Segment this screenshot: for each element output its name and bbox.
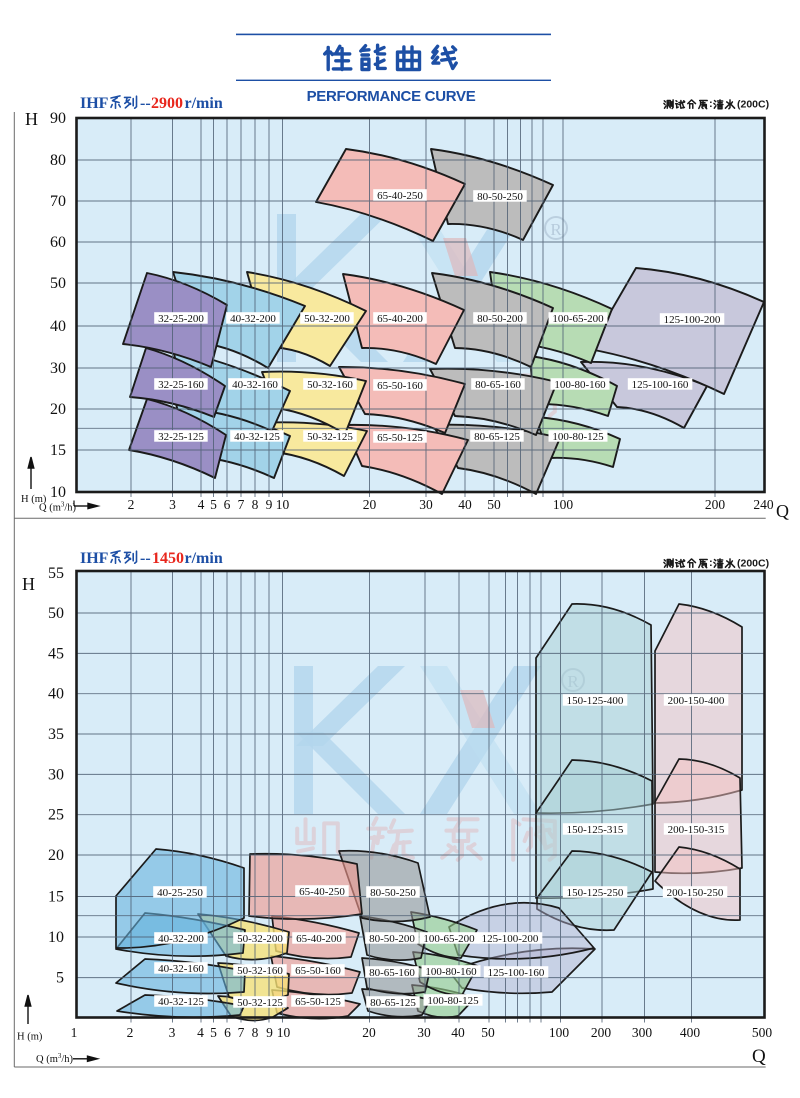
svg-text:3: 3 bbox=[169, 1025, 176, 1040]
svg-text:30: 30 bbox=[50, 360, 66, 377]
svg-text:H: H bbox=[25, 109, 38, 129]
svg-text:4: 4 bbox=[197, 1025, 204, 1040]
svg-text:90: 90 bbox=[50, 110, 66, 127]
svg-text:65-50-125: 65-50-125 bbox=[295, 996, 341, 1008]
svg-text:10: 10 bbox=[48, 929, 64, 946]
svg-text:40-32-125: 40-32-125 bbox=[158, 996, 204, 1008]
svg-text:6: 6 bbox=[224, 1025, 231, 1040]
svg-text:80-65-160: 80-65-160 bbox=[475, 379, 521, 391]
svg-text:50-32-160: 50-32-160 bbox=[307, 379, 353, 391]
svg-text:(200C): (200C) bbox=[737, 99, 769, 111]
svg-text:65-40-200: 65-40-200 bbox=[377, 313, 423, 325]
svg-text:--: -- bbox=[140, 95, 151, 112]
svg-text:9: 9 bbox=[266, 1025, 273, 1040]
svg-text:IHF: IHF bbox=[80, 550, 109, 567]
svg-text:40: 40 bbox=[48, 686, 64, 703]
svg-text:30: 30 bbox=[48, 766, 64, 783]
svg-text:8: 8 bbox=[252, 497, 259, 512]
svg-text:70: 70 bbox=[50, 193, 66, 210]
svg-text:40: 40 bbox=[458, 497, 472, 512]
svg-text:65-50-160: 65-50-160 bbox=[295, 965, 341, 977]
svg-text:65-50-125: 65-50-125 bbox=[377, 432, 423, 444]
svg-text:40-32-160: 40-32-160 bbox=[232, 379, 278, 391]
svg-text:H: H bbox=[22, 574, 35, 594]
svg-text:500: 500 bbox=[752, 1025, 773, 1040]
svg-text:80-50-200: 80-50-200 bbox=[369, 933, 415, 945]
svg-text:200: 200 bbox=[591, 1025, 612, 1040]
svg-text:15: 15 bbox=[48, 889, 64, 906]
svg-text:2: 2 bbox=[128, 497, 135, 512]
svg-text:50-32-125: 50-32-125 bbox=[307, 431, 353, 443]
svg-text:32-25-160: 32-25-160 bbox=[158, 379, 204, 391]
svg-text:50: 50 bbox=[50, 275, 66, 292]
svg-text:10: 10 bbox=[277, 1025, 291, 1040]
svg-text:(200C): (200C) bbox=[737, 558, 769, 570]
svg-text:125-100-200: 125-100-200 bbox=[482, 933, 539, 945]
svg-text:7: 7 bbox=[238, 1025, 245, 1040]
svg-text:30: 30 bbox=[417, 1025, 431, 1040]
svg-text:80: 80 bbox=[50, 152, 66, 169]
svg-text:50-32-200: 50-32-200 bbox=[237, 933, 283, 945]
svg-text:100: 100 bbox=[553, 497, 574, 512]
svg-text:100-80-125: 100-80-125 bbox=[427, 995, 479, 1007]
svg-text:100-80-160: 100-80-160 bbox=[425, 966, 477, 978]
svg-text:400: 400 bbox=[680, 1025, 701, 1040]
svg-text:--: -- bbox=[140, 550, 151, 567]
svg-text:100-65-200: 100-65-200 bbox=[423, 933, 475, 945]
svg-text:2900: 2900 bbox=[151, 95, 183, 112]
svg-text::: : bbox=[709, 98, 713, 110]
svg-text:20: 20 bbox=[48, 847, 64, 864]
svg-text:125-100-160: 125-100-160 bbox=[632, 379, 689, 391]
svg-text:Q (m3/h): Q (m3/h) bbox=[36, 1052, 74, 1065]
svg-text:1: 1 bbox=[71, 1025, 78, 1040]
svg-text::: : bbox=[709, 557, 713, 569]
svg-text:45: 45 bbox=[48, 645, 64, 662]
svg-text:200: 200 bbox=[705, 497, 726, 512]
svg-text:8: 8 bbox=[252, 1025, 259, 1040]
svg-text:80-65-125: 80-65-125 bbox=[474, 431, 520, 443]
svg-text:50-32-160: 50-32-160 bbox=[237, 965, 283, 977]
svg-text:150-125-315: 150-125-315 bbox=[567, 824, 624, 836]
svg-text:65-40-250: 65-40-250 bbox=[377, 190, 423, 202]
svg-text:125-100-160: 125-100-160 bbox=[488, 967, 545, 979]
svg-text:200-150-400: 200-150-400 bbox=[668, 695, 725, 707]
svg-text:1450: 1450 bbox=[152, 550, 184, 567]
svg-text:50: 50 bbox=[481, 1025, 495, 1040]
svg-text:IHF: IHF bbox=[80, 95, 109, 112]
svg-text:3: 3 bbox=[169, 497, 176, 512]
svg-text:30: 30 bbox=[419, 497, 433, 512]
svg-text:40-32-200: 40-32-200 bbox=[230, 313, 276, 325]
svg-text:80-50-200: 80-50-200 bbox=[477, 313, 523, 325]
svg-text:Q (m3/h): Q (m3/h) bbox=[39, 501, 77, 514]
svg-text:300: 300 bbox=[632, 1025, 653, 1040]
svg-text:150-125-400: 150-125-400 bbox=[567, 695, 624, 707]
svg-text:80-65-160: 80-65-160 bbox=[369, 967, 415, 979]
svg-text:2: 2 bbox=[127, 1025, 134, 1040]
svg-text:6: 6 bbox=[224, 497, 231, 512]
svg-text:50-32-125: 50-32-125 bbox=[237, 997, 283, 1009]
svg-text:PERFORMANCE CURVE: PERFORMANCE CURVE bbox=[307, 88, 476, 105]
svg-text:H (m): H (m) bbox=[17, 1032, 43, 1043]
svg-text:5: 5 bbox=[56, 970, 64, 987]
svg-text:100-80-160: 100-80-160 bbox=[554, 379, 606, 391]
svg-text:10: 10 bbox=[276, 497, 290, 512]
svg-text:40-32-200: 40-32-200 bbox=[158, 933, 204, 945]
svg-text:80-50-250: 80-50-250 bbox=[477, 191, 523, 203]
svg-text:60: 60 bbox=[50, 234, 66, 251]
svg-text:150-125-250: 150-125-250 bbox=[567, 887, 624, 899]
svg-text:9: 9 bbox=[266, 497, 273, 512]
svg-text:100-65-200: 100-65-200 bbox=[552, 313, 604, 325]
svg-text:40: 40 bbox=[50, 318, 66, 335]
svg-text:20: 20 bbox=[50, 401, 66, 418]
svg-text:100-80-125: 100-80-125 bbox=[552, 431, 604, 443]
svg-text:80-50-250: 80-50-250 bbox=[370, 887, 416, 899]
svg-text:Q: Q bbox=[776, 501, 789, 521]
svg-text:Q: Q bbox=[752, 1046, 766, 1067]
svg-text:40: 40 bbox=[451, 1025, 465, 1040]
svg-text:40-32-125: 40-32-125 bbox=[234, 431, 280, 443]
svg-text:35: 35 bbox=[48, 726, 64, 743]
svg-text:80-65-125: 80-65-125 bbox=[370, 997, 416, 1009]
svg-text:4: 4 bbox=[198, 497, 205, 512]
svg-text:32-25-200: 32-25-200 bbox=[158, 313, 204, 325]
svg-text:50: 50 bbox=[48, 605, 64, 622]
svg-text:240: 240 bbox=[753, 497, 774, 512]
svg-text:100: 100 bbox=[549, 1025, 570, 1040]
svg-text:65-40-200: 65-40-200 bbox=[296, 933, 342, 945]
svg-text:10: 10 bbox=[50, 484, 66, 501]
svg-text:32-25-125: 32-25-125 bbox=[158, 431, 204, 443]
svg-text:65-50-160: 65-50-160 bbox=[377, 380, 423, 392]
svg-text:20: 20 bbox=[362, 1025, 376, 1040]
svg-text:50-32-200: 50-32-200 bbox=[304, 313, 350, 325]
svg-text:20: 20 bbox=[363, 497, 377, 512]
svg-text:40-25-250: 40-25-250 bbox=[157, 887, 203, 899]
svg-text:15: 15 bbox=[50, 442, 66, 459]
svg-text:55: 55 bbox=[48, 565, 64, 582]
svg-text:50: 50 bbox=[487, 497, 501, 512]
svg-text:200-150-250: 200-150-250 bbox=[667, 887, 724, 899]
svg-text:r/min: r/min bbox=[185, 550, 223, 567]
svg-text:25: 25 bbox=[48, 807, 64, 824]
svg-text:5: 5 bbox=[210, 497, 217, 512]
svg-text:40-32-160: 40-32-160 bbox=[158, 963, 204, 975]
svg-text:7: 7 bbox=[238, 497, 245, 512]
svg-text:200-150-315: 200-150-315 bbox=[668, 824, 725, 836]
svg-text:r/min: r/min bbox=[185, 95, 223, 112]
svg-text:65-40-250: 65-40-250 bbox=[299, 886, 345, 898]
svg-text:5: 5 bbox=[210, 1025, 217, 1040]
svg-text:R: R bbox=[550, 220, 562, 239]
svg-text:125-100-200: 125-100-200 bbox=[664, 314, 721, 326]
